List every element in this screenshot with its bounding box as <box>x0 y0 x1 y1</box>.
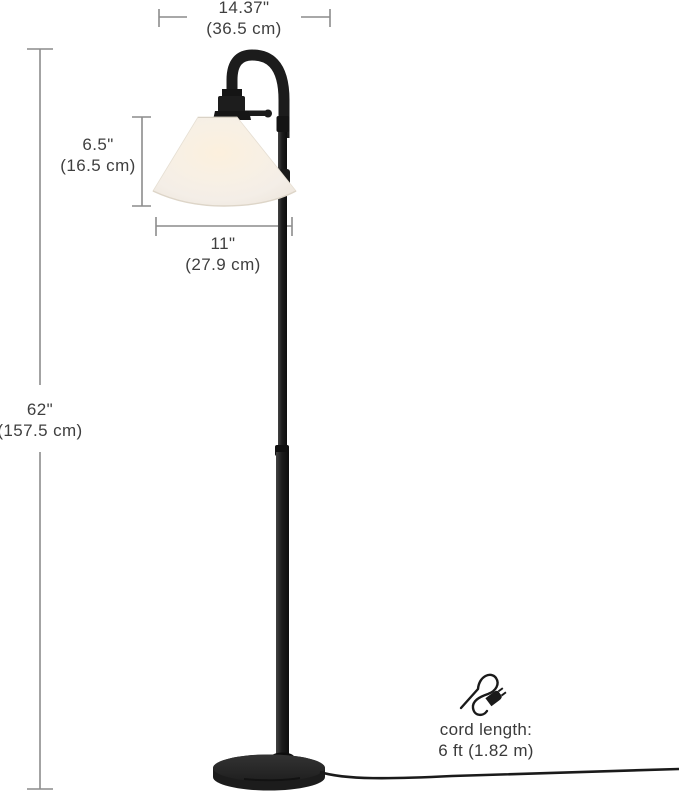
power-cord-icon <box>461 675 507 715</box>
dim-metric: (157.5 cm) <box>0 420 83 441</box>
lamp-line-art <box>0 0 679 793</box>
lamp-base <box>213 753 325 791</box>
dim-inches: 62" <box>0 399 83 420</box>
cord-length-value: 6 ft (1.82 m) <box>438 740 534 761</box>
dim-label-lamp-height: 62" (157.5 cm) <box>0 399 83 441</box>
dim-inches: 14.37" <box>206 0 281 18</box>
dim-inches: 11" <box>185 233 260 254</box>
lamp-pole-lower <box>276 452 289 760</box>
pole-joint-collar <box>277 116 290 132</box>
dim-label-shade-bottom-width: 11" (27.9 cm) <box>185 233 260 275</box>
dim-inches: 6.5" <box>60 134 135 155</box>
cord-length-label: cord length: 6 ft (1.82 m) <box>438 719 534 761</box>
dim-metric: (16.5 cm) <box>60 155 135 176</box>
cord-length-title: cord length: <box>438 719 534 740</box>
dim-label-shade-height: 6.5" (16.5 cm) <box>60 134 135 176</box>
lamp-socket <box>213 89 251 120</box>
lamp-illustration <box>153 55 679 791</box>
dim-metric: (36.5 cm) <box>206 18 281 39</box>
power-cord <box>320 769 679 778</box>
support-arm-end <box>264 110 272 118</box>
lamp-shade <box>153 117 296 206</box>
dim-metric: (27.9 cm) <box>185 254 260 275</box>
product-dimension-diagram: 14.37" (36.5 cm) 6.5" (16.5 cm) 11" (27.… <box>0 0 679 793</box>
dim-label-shade-top-width: 14.37" (36.5 cm) <box>206 0 281 39</box>
